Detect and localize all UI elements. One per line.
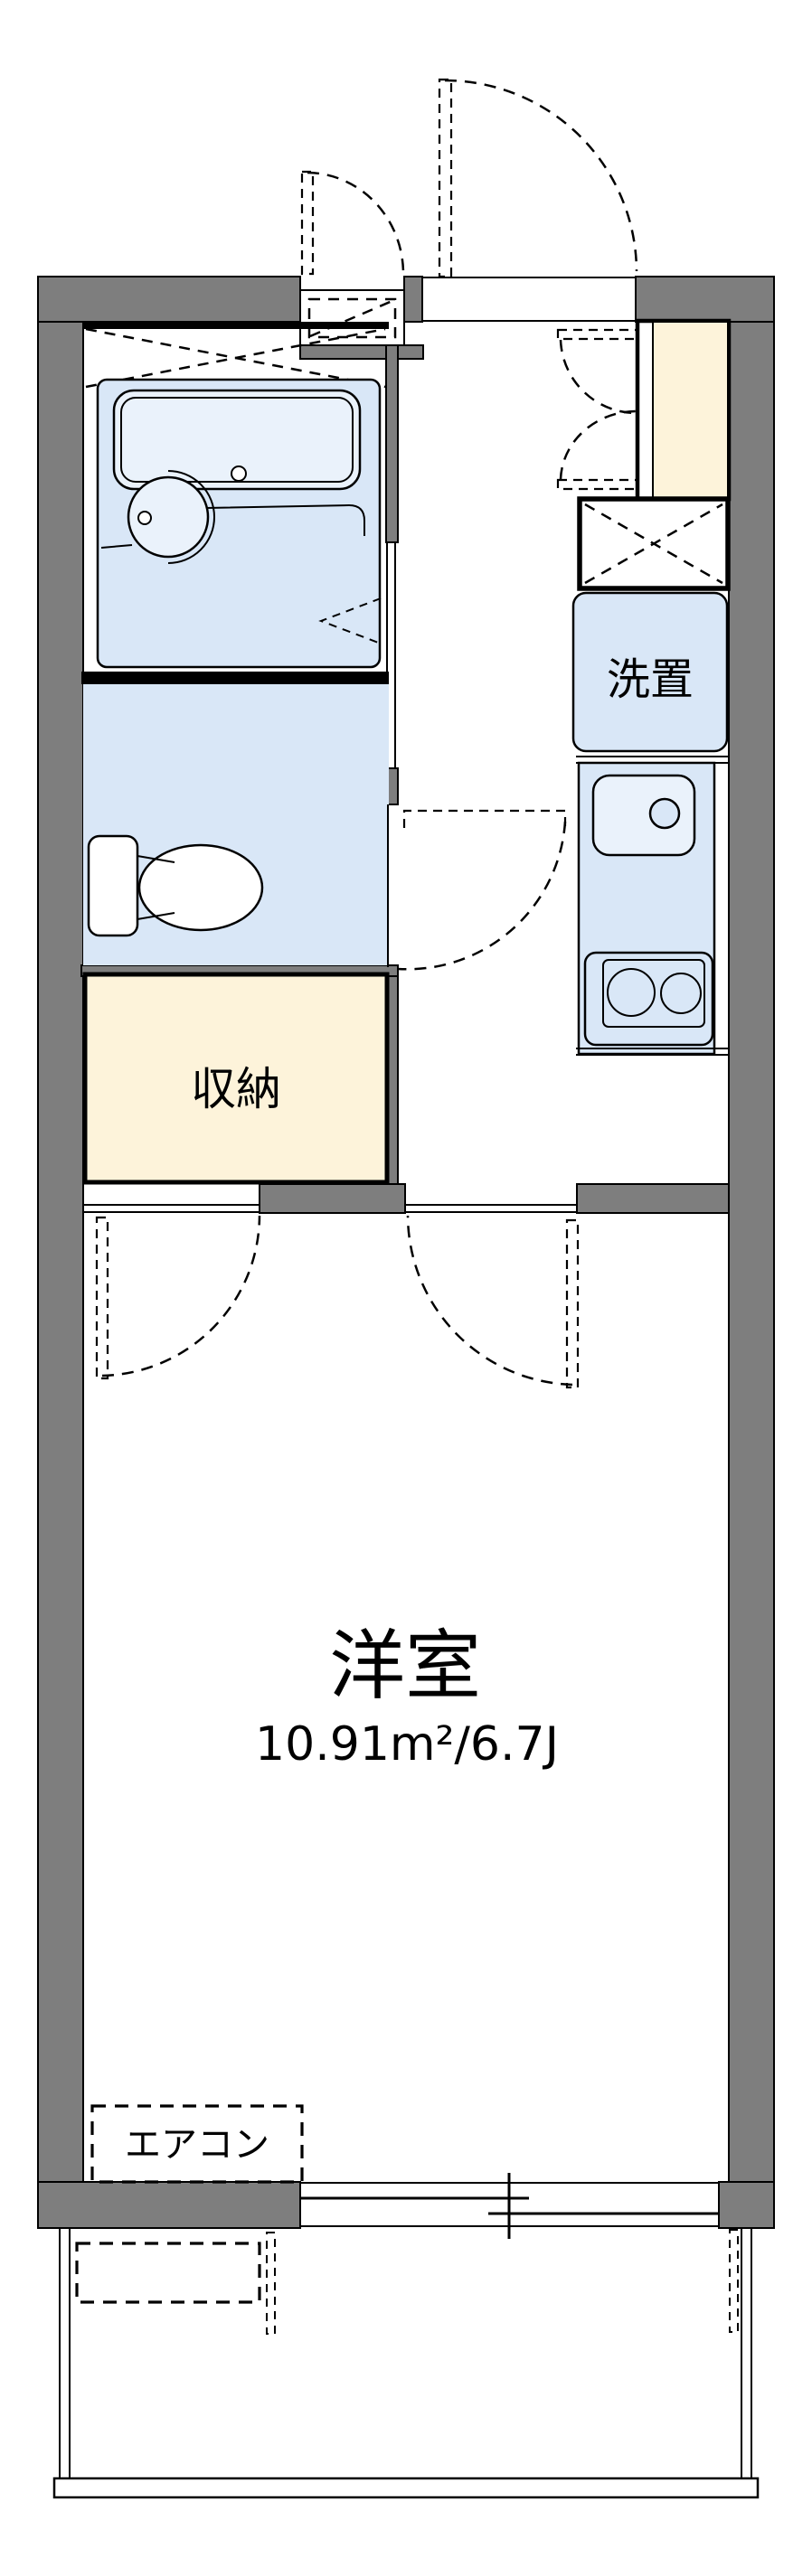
- stove-unit: [585, 953, 713, 1045]
- balcony-side-right: [741, 2228, 751, 2478]
- shoe-box-diagonal: [310, 300, 394, 336]
- storage: 収納: [85, 974, 387, 1182]
- balcony-outdoor-unit: [77, 2243, 260, 2302]
- wall-partition-right: [577, 1184, 729, 1213]
- wall-left: [38, 277, 83, 2228]
- balcony-side-left: [60, 2228, 70, 2478]
- closet-door-arc: [307, 173, 403, 274]
- basin-faucet: [138, 512, 151, 524]
- cabinet-door-leaf-bottom: [558, 480, 637, 489]
- wall-niche-bottom: [300, 345, 423, 359]
- wall-bottom-right: [719, 2182, 774, 2228]
- wall-bathroom-bottom: [81, 672, 389, 684]
- floor-plan-svg: 洗置 収納 洋室 10.91m²/6.7J エアコン: [0, 0, 812, 2576]
- floor-plan: 洗置 収納 洋室 10.91m²/6.7J エアコン: [0, 0, 812, 2576]
- balcony-rail: [54, 2478, 758, 2497]
- toilet-tank: [89, 836, 137, 935]
- wall-top-post: [404, 277, 422, 322]
- shoe-cabinet-body: [653, 323, 727, 497]
- wall-top-right: [636, 277, 774, 322]
- kitchen: [576, 757, 729, 1055]
- entrance-door-arc: [445, 80, 637, 271]
- bathtub-drain: [231, 466, 246, 481]
- wall-hall-bath-upper: [386, 345, 398, 542]
- partition-doors: [83, 1205, 578, 1387]
- cabinet-door-arc-bottom: [561, 411, 637, 479]
- wall-right: [729, 277, 774, 2228]
- main-room-label: 洋室: [329, 1622, 481, 1710]
- main-room-area-label: 10.91m²/6.7J: [255, 1717, 559, 1772]
- toilet-door-leaf: [404, 811, 565, 828]
- washer-space-label: 洗置: [607, 654, 694, 705]
- storage-label: 収納: [191, 1063, 281, 1115]
- entrance: [300, 80, 637, 345]
- kitchen-faucet: [650, 799, 679, 828]
- room-door-left-leaf: [97, 1217, 108, 1378]
- shoe-cabinet: [558, 321, 729, 499]
- balcony-divider-right: [730, 2230, 738, 2332]
- toilet-room: [83, 684, 565, 969]
- cabinet-door-leaf-top: [558, 330, 637, 339]
- room-door-right-arc: [408, 1216, 572, 1385]
- wall-bathroom-top: [83, 322, 389, 329]
- toilet-bowl: [139, 845, 262, 930]
- main-room: 洋室 10.91m²/6.7J エアコン: [92, 1622, 559, 2182]
- toilet-door-arc: [398, 822, 565, 969]
- closet-door-leaf: [302, 172, 313, 274]
- wall-top-left: [38, 277, 300, 322]
- room-door-left-arc: [102, 1216, 260, 1376]
- aircon-label: エアコン: [125, 2124, 269, 2166]
- utility: 洗置: [573, 499, 728, 751]
- wall-partition-mid: [260, 1184, 405, 1213]
- entrance-door-leaf: [439, 80, 451, 277]
- room-door-right-leaf: [567, 1220, 578, 1387]
- wall-bottom-left: [38, 2182, 300, 2228]
- cabinet-door-arc-top: [561, 340, 637, 413]
- balcony-divider-left: [267, 2233, 275, 2334]
